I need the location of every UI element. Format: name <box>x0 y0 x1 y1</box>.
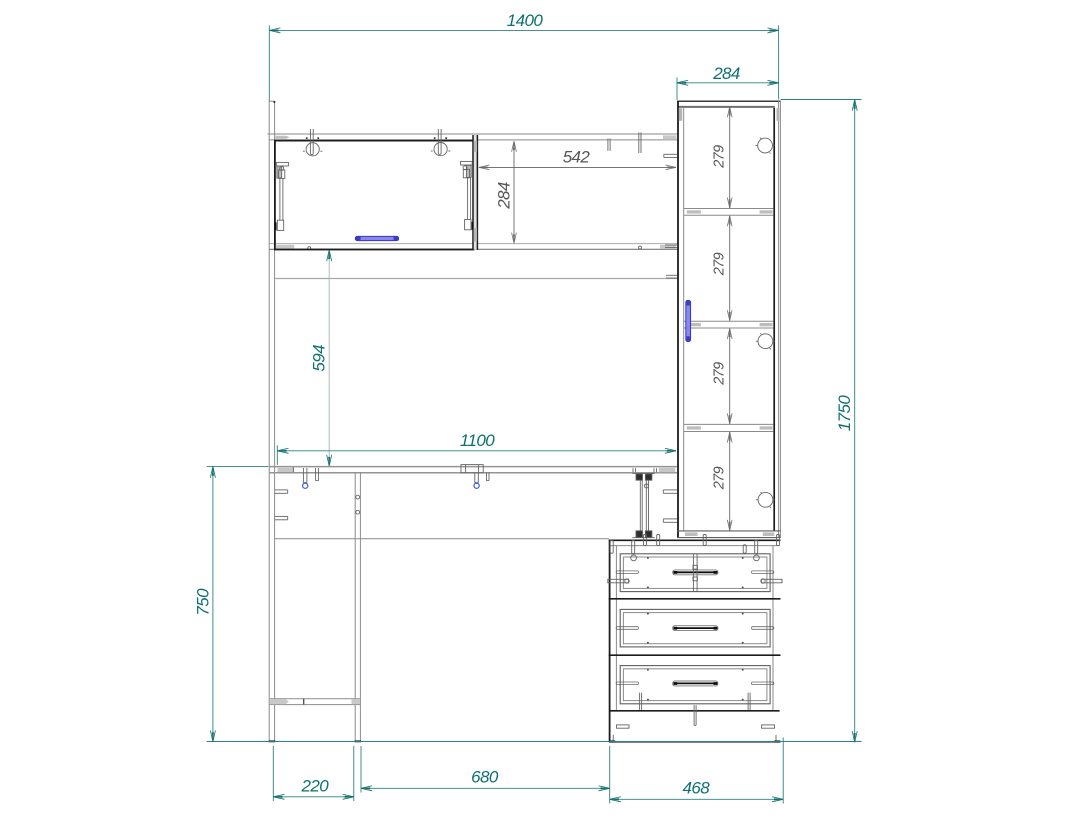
svg-text:284: 284 <box>712 64 740 83</box>
svg-text:279: 279 <box>711 362 727 386</box>
svg-text:220: 220 <box>301 776 330 795</box>
svg-text:1400: 1400 <box>507 11 544 30</box>
svg-text:1100: 1100 <box>460 431 495 450</box>
svg-text:1750: 1750 <box>835 395 854 432</box>
svg-text:542: 542 <box>563 148 591 167</box>
svg-text:279: 279 <box>711 252 727 276</box>
svg-text:750: 750 <box>193 588 212 616</box>
svg-text:468: 468 <box>683 779 711 798</box>
svg-text:279: 279 <box>711 466 727 490</box>
svg-text:594: 594 <box>310 345 329 372</box>
svg-text:284: 284 <box>495 182 514 210</box>
svg-text:680: 680 <box>471 768 499 787</box>
svg-text:279: 279 <box>711 145 727 169</box>
